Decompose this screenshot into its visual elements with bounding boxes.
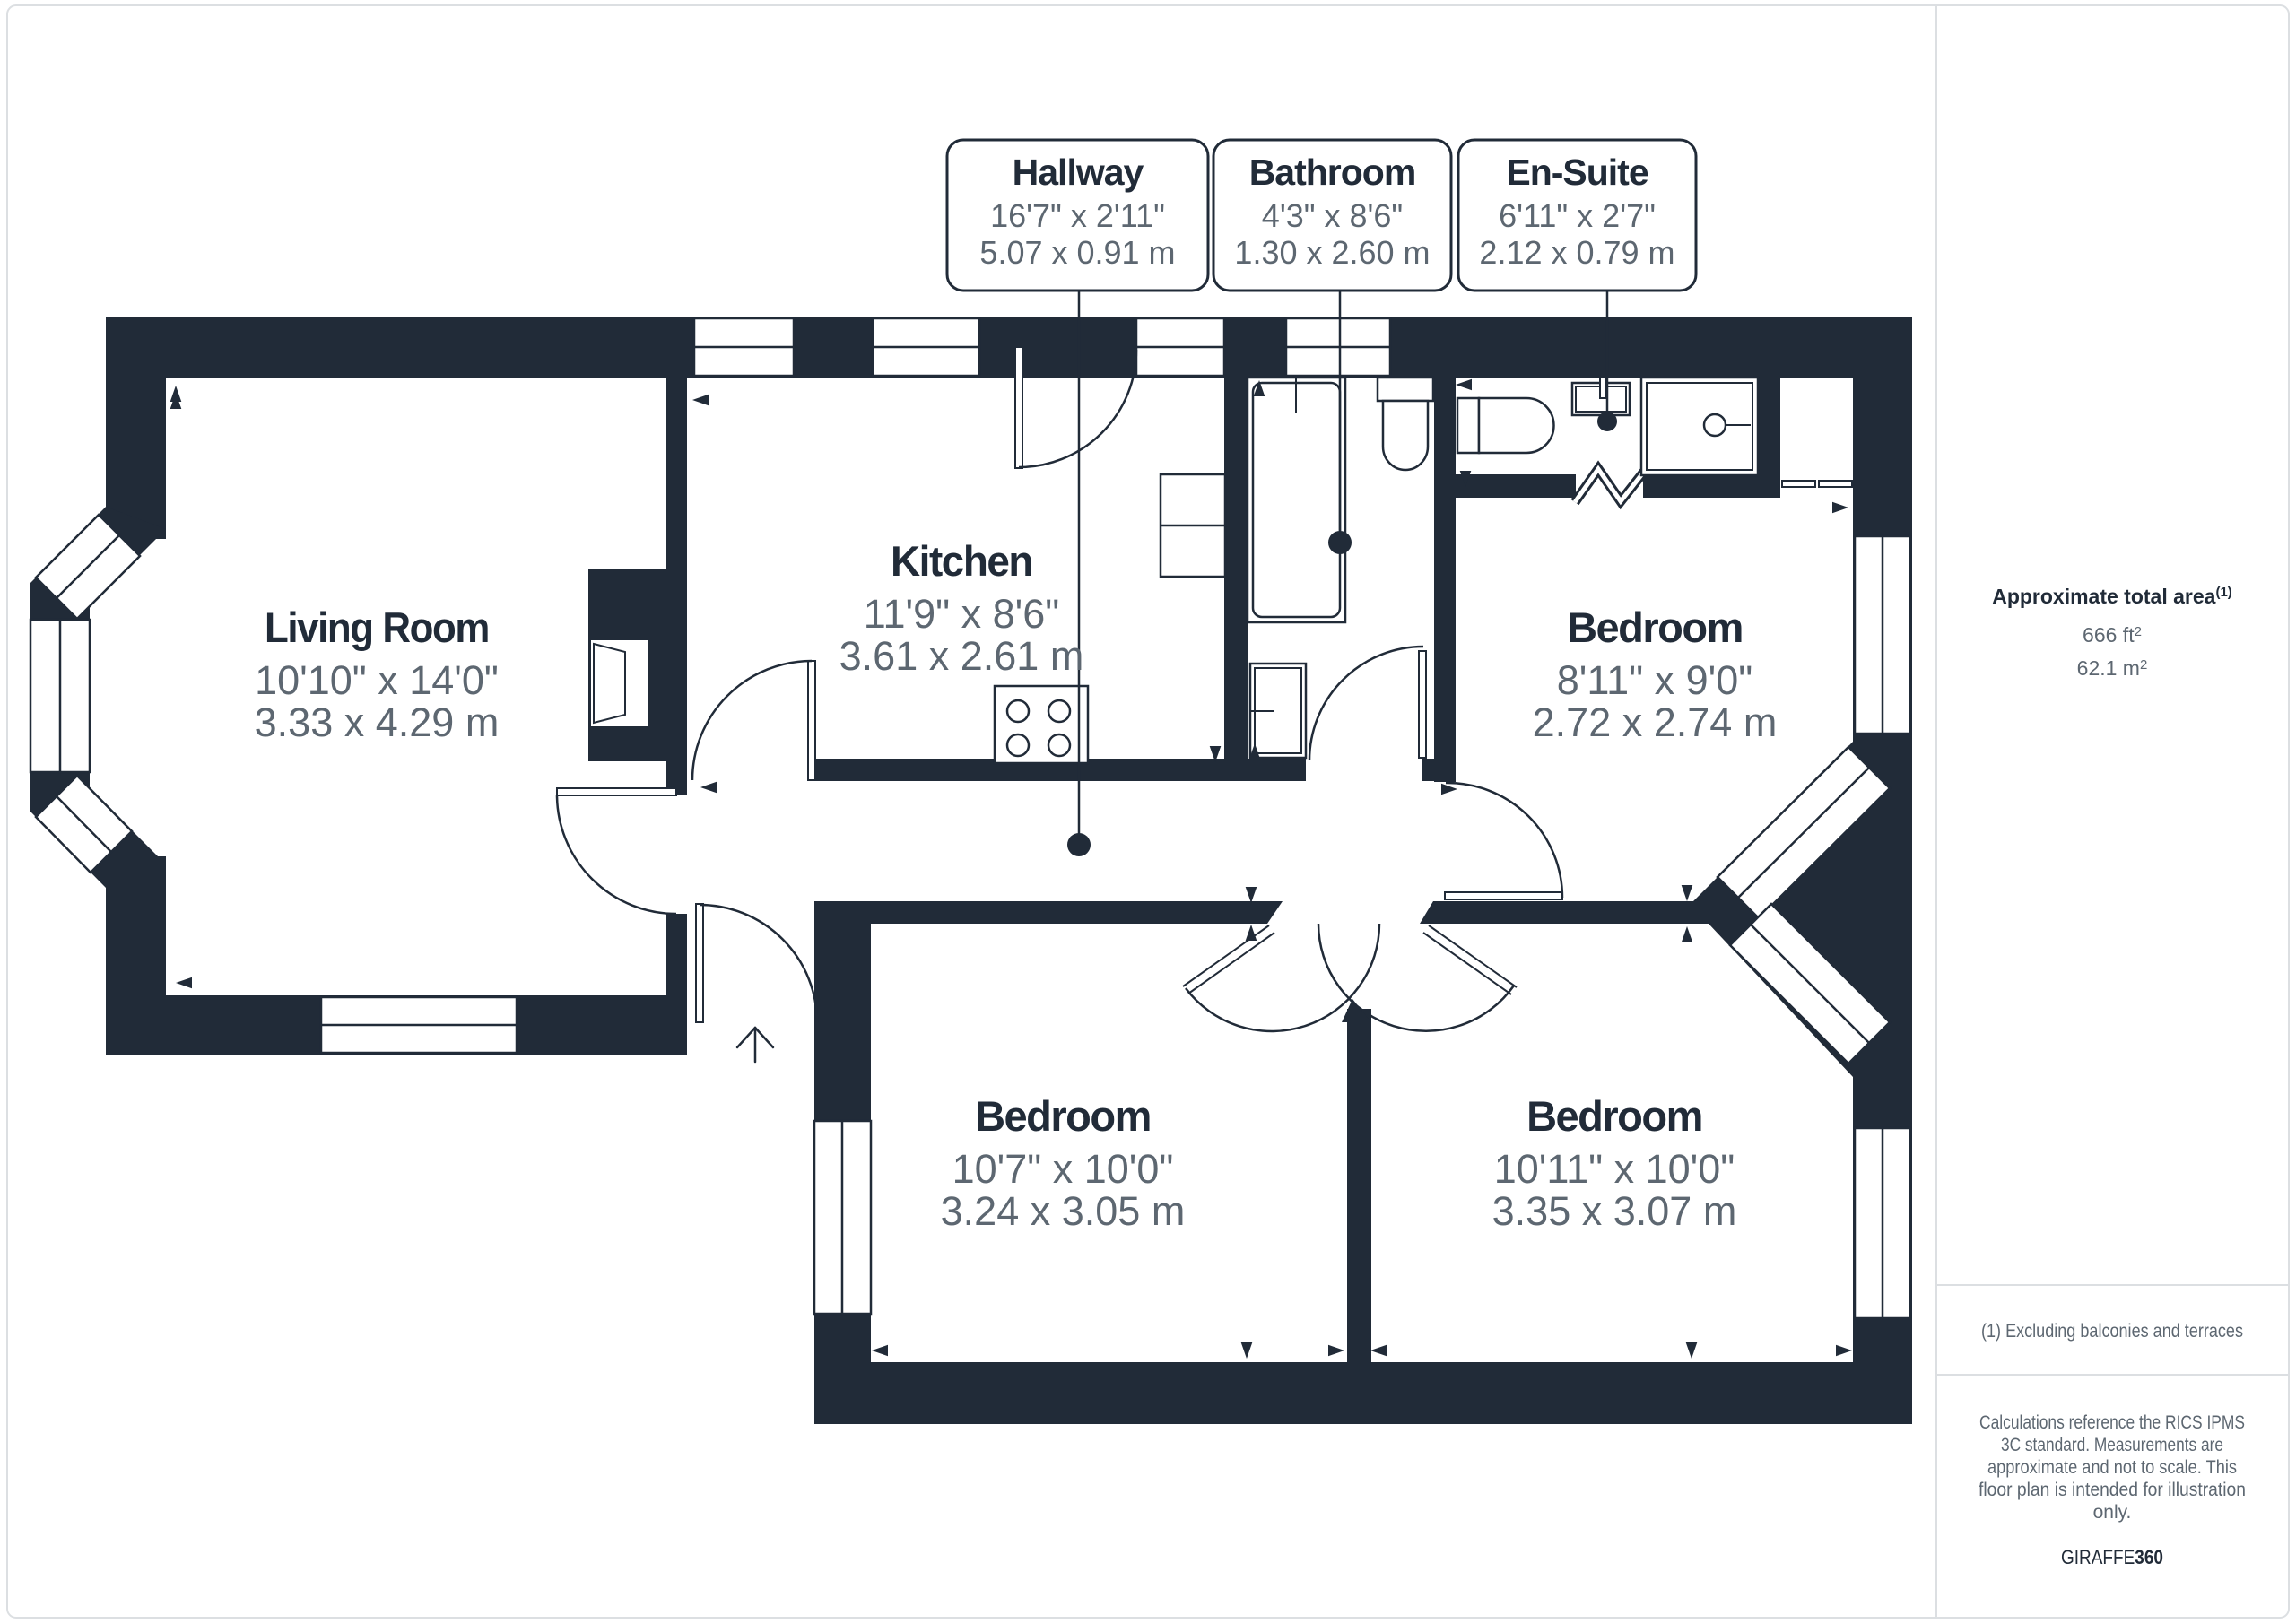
svg-text:2.72 x 2.74 m: 2.72 x 2.74 m	[1533, 699, 1778, 745]
svg-text:10'10" x 14'0": 10'10" x 14'0"	[255, 657, 499, 703]
svg-text:3.61 x 2.61 m: 3.61 x 2.61 m	[839, 633, 1084, 679]
svg-text:11'9" x 8'6": 11'9" x 8'6"	[864, 591, 1059, 637]
svg-text:Bedroom: Bedroom	[975, 1092, 1151, 1140]
svg-text:1.30 x 2.60 m: 1.30 x 2.60 m	[1234, 234, 1430, 271]
svg-text:3.33 x 4.29 m: 3.33 x 4.29 m	[255, 699, 500, 745]
svg-text:62.1 m2: 62.1 m2	[2077, 656, 2148, 680]
svg-text:666 ft2: 666 ft2	[2083, 623, 2142, 647]
svg-text:Calculations reference the RIC: Calculations reference the RICS IPMS	[1979, 1412, 2245, 1433]
svg-text:16'7" x 2'11": 16'7" x 2'11"	[990, 197, 1165, 234]
svg-text:10'11" x 10'0": 10'11" x 10'0"	[1494, 1146, 1735, 1192]
svg-text:floor plan is intended for ill: floor plan is intended for illustration	[1979, 1480, 2246, 1500]
svg-text:2.12 x 0.79 m: 2.12 x 0.79 m	[1479, 234, 1674, 271]
svg-text:Bedroom: Bedroom	[1526, 1092, 1702, 1140]
svg-text:Bathroom: Bathroom	[1249, 152, 1416, 193]
svg-text:(1) Excluding balconies and te: (1) Excluding balconies and terraces	[1981, 1321, 2243, 1342]
svg-text:Approximate total area(1): Approximate total area(1)	[1992, 585, 2232, 608]
svg-text:10'7" x 10'0": 10'7" x 10'0"	[952, 1146, 1174, 1192]
svg-text:Living Room: Living Room	[265, 604, 489, 651]
svg-text:3.35 x 3.07 m: 3.35 x 3.07 m	[1492, 1188, 1737, 1234]
svg-text:3.24 x 3.05 m: 3.24 x 3.05 m	[941, 1188, 1186, 1234]
svg-text:4'3" x 8'6": 4'3" x 8'6"	[1262, 197, 1403, 234]
svg-text:only.: only.	[2093, 1502, 2132, 1523]
svg-text:3C standard. Measurements are: 3C standard. Measurements are	[2001, 1435, 2223, 1455]
svg-text:Kitchen: Kitchen	[891, 537, 1032, 585]
svg-text:Bedroom: Bedroom	[1567, 604, 1743, 651]
svg-text:8'11" x 9'0": 8'11" x 9'0"	[1557, 657, 1752, 703]
svg-text:5.07 x 0.91 m: 5.07 x 0.91 m	[979, 234, 1175, 271]
svg-text:En-Suite: En-Suite	[1506, 152, 1648, 193]
svg-text:6'11" x 2'7": 6'11" x 2'7"	[1499, 197, 1656, 234]
svg-text:approximate and not to scale.: approximate and not to scale. This	[1987, 1457, 2237, 1478]
svg-text:GIRAFFE360: GIRAFFE360	[2061, 1546, 2163, 1568]
svg-text:Hallway: Hallway	[1013, 152, 1144, 193]
